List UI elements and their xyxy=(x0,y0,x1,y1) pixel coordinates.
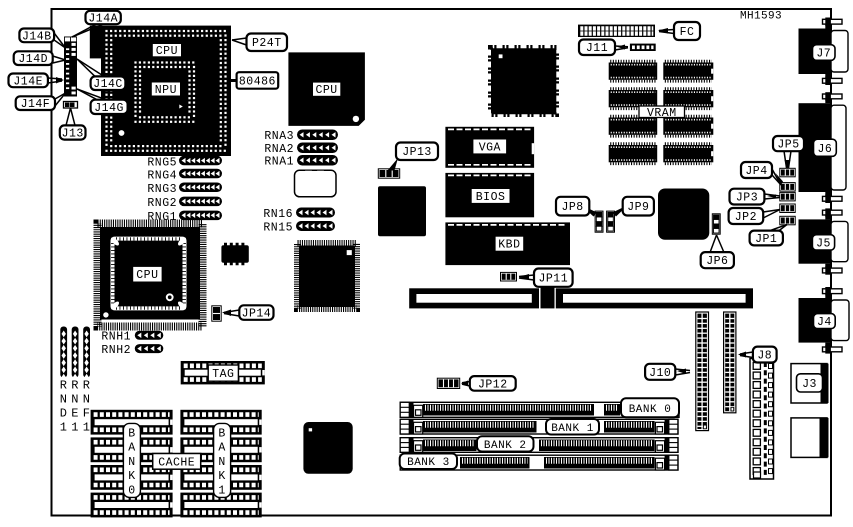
svg-text:N: N xyxy=(83,393,91,407)
svg-text:JP11: JP11 xyxy=(538,273,568,286)
svg-text:FC: FC xyxy=(680,26,695,39)
svg-text:N: N xyxy=(128,456,135,469)
svg-text:RN15: RN15 xyxy=(263,222,293,235)
svg-text:J14B: J14B xyxy=(22,30,52,43)
svg-text:RNH1: RNH1 xyxy=(101,331,131,344)
svg-text:R: R xyxy=(60,379,68,393)
svg-text:CACHE: CACHE xyxy=(158,456,195,469)
svg-text:K: K xyxy=(218,470,225,483)
svg-text:J8: J8 xyxy=(757,350,772,363)
svg-text:JP6: JP6 xyxy=(706,255,728,268)
svg-text:J4: J4 xyxy=(817,316,832,329)
svg-text:VRAM: VRAM xyxy=(647,107,677,120)
svg-text:NPU: NPU xyxy=(155,84,177,97)
svg-text:1: 1 xyxy=(218,484,225,497)
svg-text:CPU: CPU xyxy=(315,84,337,97)
svg-text:J14F: J14F xyxy=(21,98,51,111)
svg-text:JP2: JP2 xyxy=(735,211,757,224)
svg-text:RNG5: RNG5 xyxy=(147,156,177,169)
svg-text:J5: J5 xyxy=(816,237,831,250)
svg-text:BANK 3: BANK 3 xyxy=(407,457,450,469)
svg-text:J14D: J14D xyxy=(18,53,48,66)
svg-text:J11: J11 xyxy=(586,42,608,55)
svg-text:BIOS: BIOS xyxy=(476,191,506,204)
svg-text:1: 1 xyxy=(71,421,79,435)
svg-text:J14G: J14G xyxy=(94,102,124,115)
svg-text:JP3: JP3 xyxy=(736,192,758,205)
svg-text:RNG1: RNG1 xyxy=(147,211,177,224)
svg-text:BANK 1: BANK 1 xyxy=(551,423,594,435)
svg-text:K: K xyxy=(128,470,135,483)
svg-text:RNA3: RNA3 xyxy=(264,130,294,143)
svg-text:J14E: J14E xyxy=(13,75,43,88)
svg-text:J6: J6 xyxy=(817,143,832,156)
svg-text:F: F xyxy=(83,407,91,421)
svg-text:N: N xyxy=(71,393,79,407)
svg-text:CPU: CPU xyxy=(156,45,178,58)
svg-text:1: 1 xyxy=(60,421,68,435)
svg-text:KBD: KBD xyxy=(498,239,520,252)
svg-text:N: N xyxy=(60,393,68,407)
svg-text:BANK 0: BANK 0 xyxy=(629,404,672,416)
svg-text:JP4: JP4 xyxy=(745,165,767,178)
svg-text:JP13: JP13 xyxy=(402,146,432,159)
svg-text:J14A: J14A xyxy=(88,13,118,26)
svg-text:BANK 2: BANK 2 xyxy=(484,440,527,452)
svg-text:RNG3: RNG3 xyxy=(147,183,177,196)
svg-text:JP14: JP14 xyxy=(242,308,272,321)
svg-text:RNG4: RNG4 xyxy=(147,169,177,182)
svg-text:RNH2: RNH2 xyxy=(101,344,131,357)
svg-text:RNA2: RNA2 xyxy=(264,143,294,156)
svg-text:A: A xyxy=(128,442,135,455)
svg-text:MH1593: MH1593 xyxy=(740,11,782,23)
svg-text:P24T: P24T xyxy=(252,37,282,50)
svg-text:R: R xyxy=(71,379,79,393)
svg-text:E: E xyxy=(71,407,79,421)
svg-text:RNA1: RNA1 xyxy=(264,156,294,169)
svg-text:TAG: TAG xyxy=(212,368,234,381)
svg-text:J7: J7 xyxy=(816,48,831,61)
svg-text:0: 0 xyxy=(128,484,135,497)
svg-text:J10: J10 xyxy=(649,367,671,380)
svg-text:RNG2: RNG2 xyxy=(147,197,177,210)
svg-text:A: A xyxy=(218,442,225,455)
svg-text:JP9: JP9 xyxy=(627,201,649,214)
svg-text:1: 1 xyxy=(83,421,91,435)
svg-text:JP1: JP1 xyxy=(755,233,777,246)
svg-text:B: B xyxy=(218,428,225,441)
svg-text:JP12: JP12 xyxy=(478,378,508,391)
svg-text:B: B xyxy=(128,428,135,441)
svg-text:J14C: J14C xyxy=(93,78,123,91)
svg-text:80486: 80486 xyxy=(239,76,276,89)
svg-text:VGA: VGA xyxy=(479,141,501,154)
svg-text:J13: J13 xyxy=(62,128,84,141)
svg-text:N: N xyxy=(218,456,225,469)
svg-text:RN16: RN16 xyxy=(263,208,293,221)
svg-text:R: R xyxy=(83,379,91,393)
svg-text:JP5: JP5 xyxy=(777,139,799,152)
svg-text:CPU: CPU xyxy=(136,269,158,282)
svg-text:D: D xyxy=(60,407,68,421)
svg-text:JP8: JP8 xyxy=(561,201,583,214)
svg-text:J3: J3 xyxy=(802,378,817,391)
